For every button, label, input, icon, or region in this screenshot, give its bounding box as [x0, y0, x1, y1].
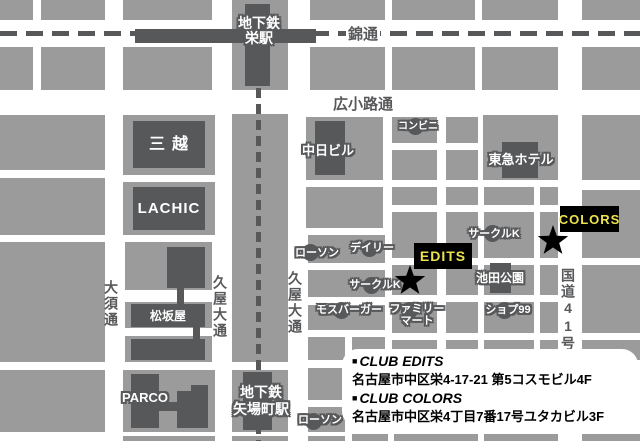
mitsukoshi-label: 三越 [149, 137, 195, 153]
city-block [446, 302, 478, 333]
city-block [392, 150, 437, 180]
city-block [446, 150, 478, 180]
sakae-station-label-line1: 地下鉄 [238, 16, 280, 30]
lawson-north-label: ローソン [295, 248, 339, 259]
edits-marker-label: EDITS [420, 248, 466, 264]
city-block [540, 187, 558, 205]
city-block [394, 434, 478, 441]
club-colors-name: ■CLUB COLORS [352, 390, 462, 406]
street-label-osu: 大須通 [104, 280, 118, 328]
city-block [0, 370, 105, 432]
access-map: 錦通 広小路通 大須通 久屋大通 久屋大通 国道41号 地下鉄 栄駅 地下鉄 矢… [0, 0, 640, 441]
city-block [582, 0, 640, 20]
edits-marker-box: EDITS [414, 243, 472, 269]
city-block [310, 0, 385, 20]
street-label-hirokoji: 広小路通 [333, 97, 393, 112]
building-connector [193, 326, 200, 340]
square-bullet-icon: ■ [352, 393, 357, 403]
square-bullet-icon: ■ [352, 356, 357, 366]
edits-star-icon [393, 265, 427, 297]
city-block [352, 434, 388, 441]
city-block [123, 436, 215, 441]
city-block [41, 47, 105, 90]
club-edits-name: ■CLUB EDITS [352, 353, 443, 369]
city-block [484, 187, 534, 205]
club-colors-address: 名古屋市中区栄4丁目7番17号ユタカビル3F [352, 406, 604, 425]
city-block [482, 47, 558, 90]
matsuzakaya-label: 松坂屋 [150, 310, 186, 322]
mos-burger-label: モスバーガー [316, 305, 382, 316]
family-mart-label-line1: ファミリー [390, 304, 445, 315]
city-block [392, 47, 475, 90]
city-block [582, 115, 640, 180]
city-block [123, 0, 212, 20]
street-label-route41: 国道41号 [561, 268, 575, 352]
street-label-hisaya-east: 久屋大通 [288, 271, 302, 335]
city-block [582, 47, 640, 90]
city-block [582, 434, 640, 441]
parco-building [191, 385, 208, 395]
city-block [446, 265, 478, 295]
street-label-nishiki: 錦通 [346, 27, 380, 42]
address-panel: ■CLUB EDITS 名古屋市中区栄4-17-21 第5コスモビル4F ■CL… [342, 349, 638, 427]
building-connector [177, 288, 184, 304]
city-block [582, 265, 640, 333]
yabacho-station-label-line2: 矢場町駅 [233, 402, 289, 416]
city-block [484, 434, 558, 441]
city-block [0, 242, 105, 362]
daily-label: デイリー [350, 243, 394, 254]
city-block [41, 0, 105, 20]
city-block [0, 115, 105, 170]
city-block [446, 187, 478, 205]
city-block [310, 47, 385, 90]
family-mart-label-line2: マート [401, 316, 434, 327]
parco-label: PARCO [122, 391, 168, 404]
conbini-label: コンビニ [398, 122, 438, 132]
club-edits-address: 名古屋市中区栄4-17-21 第5コスモビル4F [352, 369, 592, 388]
matsuzakaya-building [131, 339, 205, 360]
lachic-label: LACHIC [138, 201, 201, 216]
colors-marker-box: COLORS [560, 206, 619, 232]
city-block [0, 47, 33, 90]
shop99-label: ショプ99 [485, 305, 530, 316]
sakae-station-bar [135, 29, 316, 43]
lawson-south-label: ローソン [298, 415, 342, 426]
colors-marker-label: COLORS [559, 212, 621, 227]
nishiki-subway-line [0, 31, 640, 36]
yabacho-station-label-line1: 地下鉄 [240, 385, 282, 399]
matsuzakaya-building [167, 247, 205, 288]
city-block [0, 0, 33, 20]
city-block [306, 187, 383, 228]
city-block [0, 178, 105, 235]
city-block [123, 47, 212, 90]
chunichi-building-label: 中日ビル [302, 144, 354, 157]
city-block [540, 302, 558, 333]
circle-k-north-label: サークルK [468, 229, 520, 240]
ikeda-park-label: 池田公園 [476, 272, 524, 284]
city-block [308, 368, 345, 400]
city-block [308, 436, 345, 441]
street-label-hisaya-west: 久屋大通 [213, 275, 227, 339]
city-block [482, 0, 558, 20]
tokyu-hotel-label: 東急ホテル [488, 153, 553, 166]
city-block [392, 187, 437, 205]
city-block [446, 117, 478, 143]
parco-building [177, 391, 208, 428]
sakae-station-label-line2: 栄駅 [245, 31, 273, 45]
city-block [392, 0, 475, 20]
city-block [540, 265, 558, 295]
city-block [308, 337, 345, 360]
